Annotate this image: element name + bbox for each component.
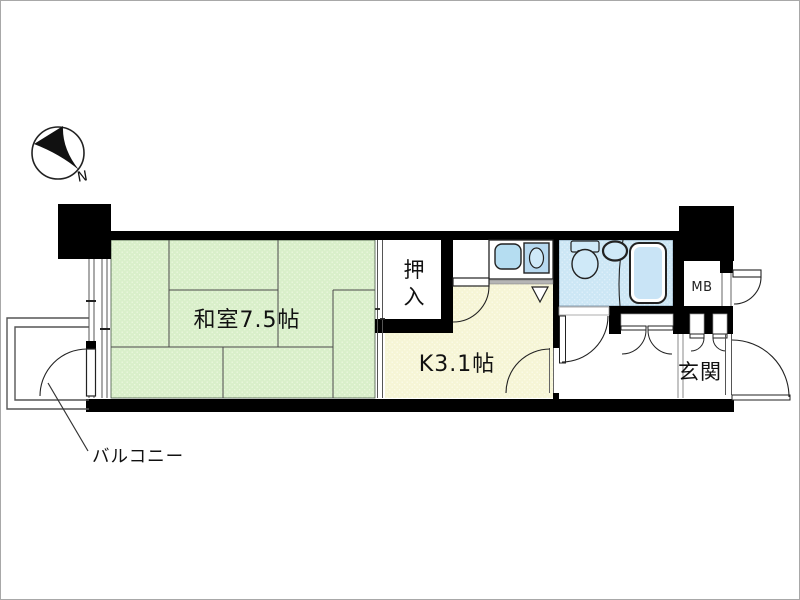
- compass: N: [32, 126, 89, 186]
- kitchen-sink: [495, 244, 521, 269]
- hall-closet-doors: [621, 314, 673, 354]
- bathroom-door-leaf: [560, 316, 566, 363]
- balcony: [7, 318, 89, 409]
- washitsu-label: 和室7.5帖: [194, 308, 301, 333]
- hall-closet-recess: [621, 314, 673, 327]
- shoe-cabinet-swing-arc: [713, 338, 726, 351]
- closet-door-swing-arc: [648, 330, 672, 354]
- front-door: [726, 334, 791, 400]
- meter-box-door: [722, 270, 761, 306]
- wall-stub-genkan-left: [673, 311, 690, 334]
- shoe-cabinet-swing-arc: [691, 338, 704, 351]
- wash-basin: [603, 242, 627, 261]
- meter-box-door-swing-arc: [734, 277, 761, 304]
- balcony-label: バルコニー: [92, 447, 184, 467]
- toilet-bowl: [572, 250, 598, 279]
- pillar-top-right: [679, 206, 734, 231]
- meter-box-door-leaf: [733, 270, 761, 277]
- wall-kitchen-right: [553, 240, 559, 316]
- closet-door-leaf: [648, 326, 673, 330]
- closet-door-leaf: [621, 326, 646, 330]
- bathroom-door-opening: [559, 307, 609, 315]
- wall-kitchen-door-stub-bottom: [553, 393, 559, 399]
- bathroom-door-swing-arc: [562, 316, 608, 362]
- shoe-cabinet-recess: [713, 314, 727, 334]
- front-door-swing-arc: [732, 340, 789, 397]
- wall-right-upper: [720, 231, 733, 273]
- bathtub-inner: [634, 247, 662, 299]
- window-mullion-block: [86, 341, 96, 349]
- front-door-leaf: [732, 395, 790, 400]
- shoe-cabinet-recess: [690, 314, 704, 334]
- north-label: N: [76, 168, 89, 186]
- kitchen-label: K3.1帖: [419, 352, 495, 377]
- wall-closet-bottom: [375, 319, 453, 333]
- pillar-top-left: [58, 204, 111, 259]
- bathroom-door: [559, 307, 609, 363]
- wall-stub-laundry-left: [609, 306, 621, 334]
- genkan-label: 玄関: [678, 360, 722, 384]
- wall-mb-left: [679, 261, 684, 306]
- appliance-space: [453, 240, 489, 280]
- wall-bath-bottom-left: [553, 306, 559, 316]
- balcony-window: [40, 259, 110, 398]
- shoe-cabinet-door-leaf: [690, 334, 704, 338]
- wall-top: [109, 231, 734, 240]
- meter-box-label: MB: [691, 280, 712, 295]
- floor-plan-canvas: N 和室7.5帖 押 入 K3.1帖 玄関 MB バルコニー: [1, 1, 799, 599]
- counter-edge-strip: [489, 280, 553, 284]
- wall-stub-genkan-mid: [704, 311, 713, 334]
- oshiire-label-line2: 入: [404, 285, 425, 309]
- balcony-leader-line: [48, 383, 88, 451]
- closet-door-swing-arc: [622, 330, 646, 354]
- floor-plan: N 和室7.5帖 押 入 K3.1帖 玄関 MB バルコニー: [0, 0, 800, 600]
- balcony-door-swing-arc: [40, 349, 87, 396]
- wall-bottom: [86, 399, 734, 412]
- stove-burner: [530, 248, 544, 268]
- oshiire-label-line1: 押: [404, 258, 425, 282]
- wall-kitchen-door-stub-top: [553, 316, 559, 348]
- wall-closet-right: [441, 231, 453, 333]
- shoe-cabinet-door-leaf: [713, 334, 727, 338]
- balcony-door-leaf: [87, 349, 96, 396]
- kitchen-upper-door-leaf: [453, 278, 489, 286]
- balcony-outer-rail: [7, 318, 89, 409]
